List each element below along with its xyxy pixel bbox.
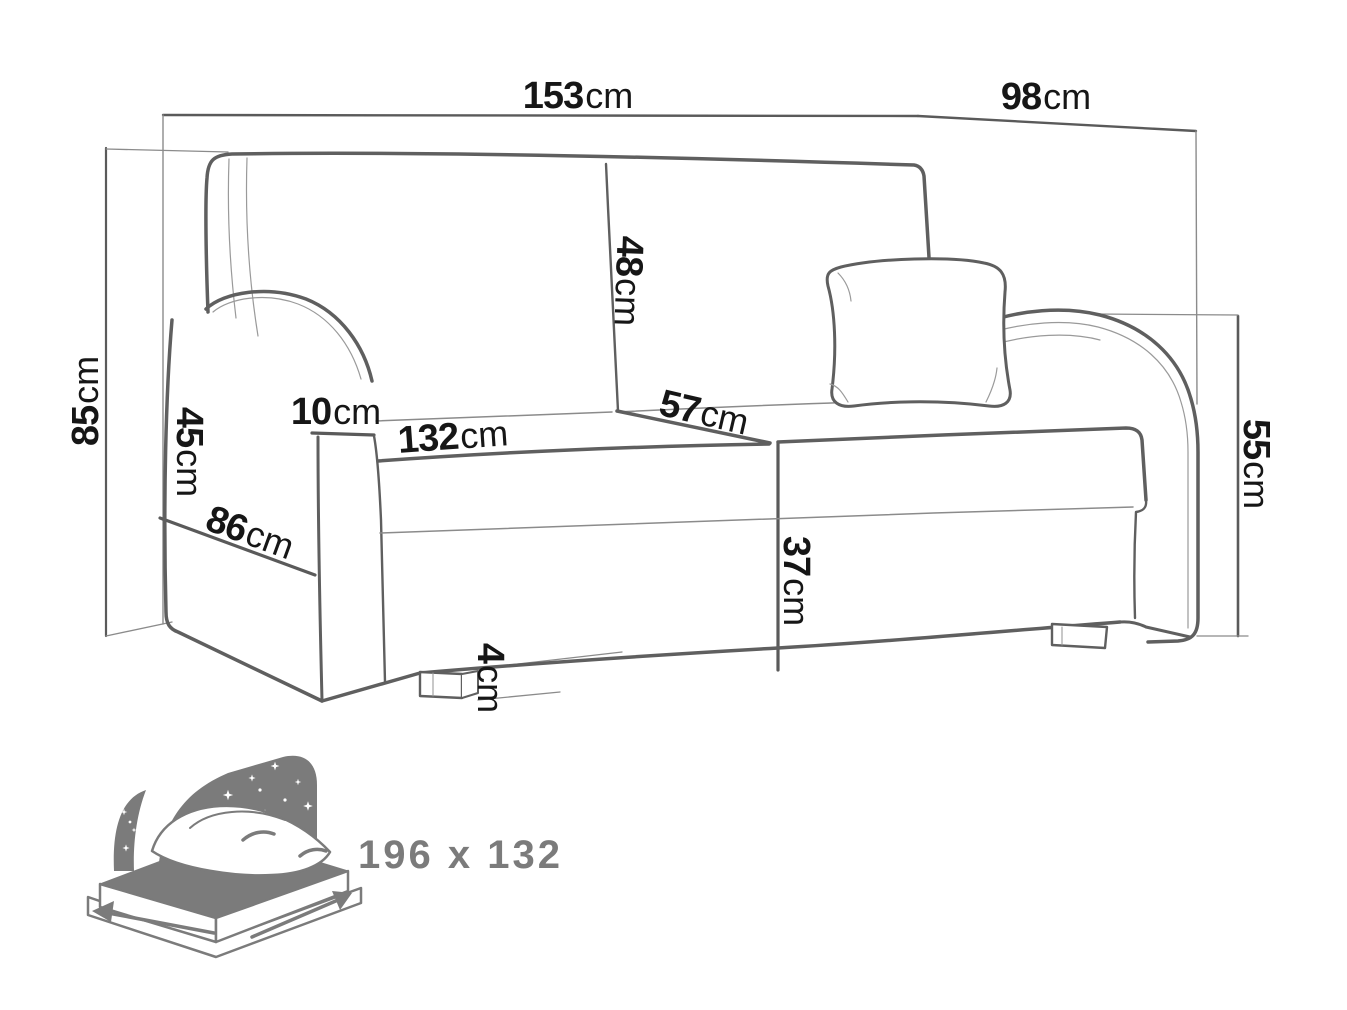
dim-label-armrest-height: 45cm [170, 407, 208, 497]
bed-icon [88, 756, 361, 957]
sofa-dimension-diagram: 153cm 98cm 85cm 45cm 10cm 132cm 48cm 57c… [0, 0, 1347, 1010]
dim-label-armrest-width: 10cm [291, 393, 381, 431]
dim-label-total-depth: 98cm [1001, 78, 1091, 116]
dim-label-backrest-cushion-height: 48cm [607, 235, 648, 327]
dim-label-seat-width: 132cm [397, 414, 510, 460]
sofa-legs [420, 624, 1107, 698]
dim-label-leg-height: 4cm [471, 643, 509, 713]
backrest [206, 153, 930, 312]
bed-size-label: 196 x 132 [358, 835, 563, 875]
dim-label-total-width: 153cm [523, 77, 633, 115]
pillow [827, 259, 1010, 407]
dim-label-total-height: 85cm [67, 356, 105, 446]
right-armrest [984, 310, 1198, 642]
dim-label-seat-height: 37cm [777, 536, 815, 626]
line-drawing [0, 0, 1347, 1010]
left-armrest [206, 292, 372, 381]
dim-label-armrest-top-height: 55cm [1237, 419, 1275, 509]
